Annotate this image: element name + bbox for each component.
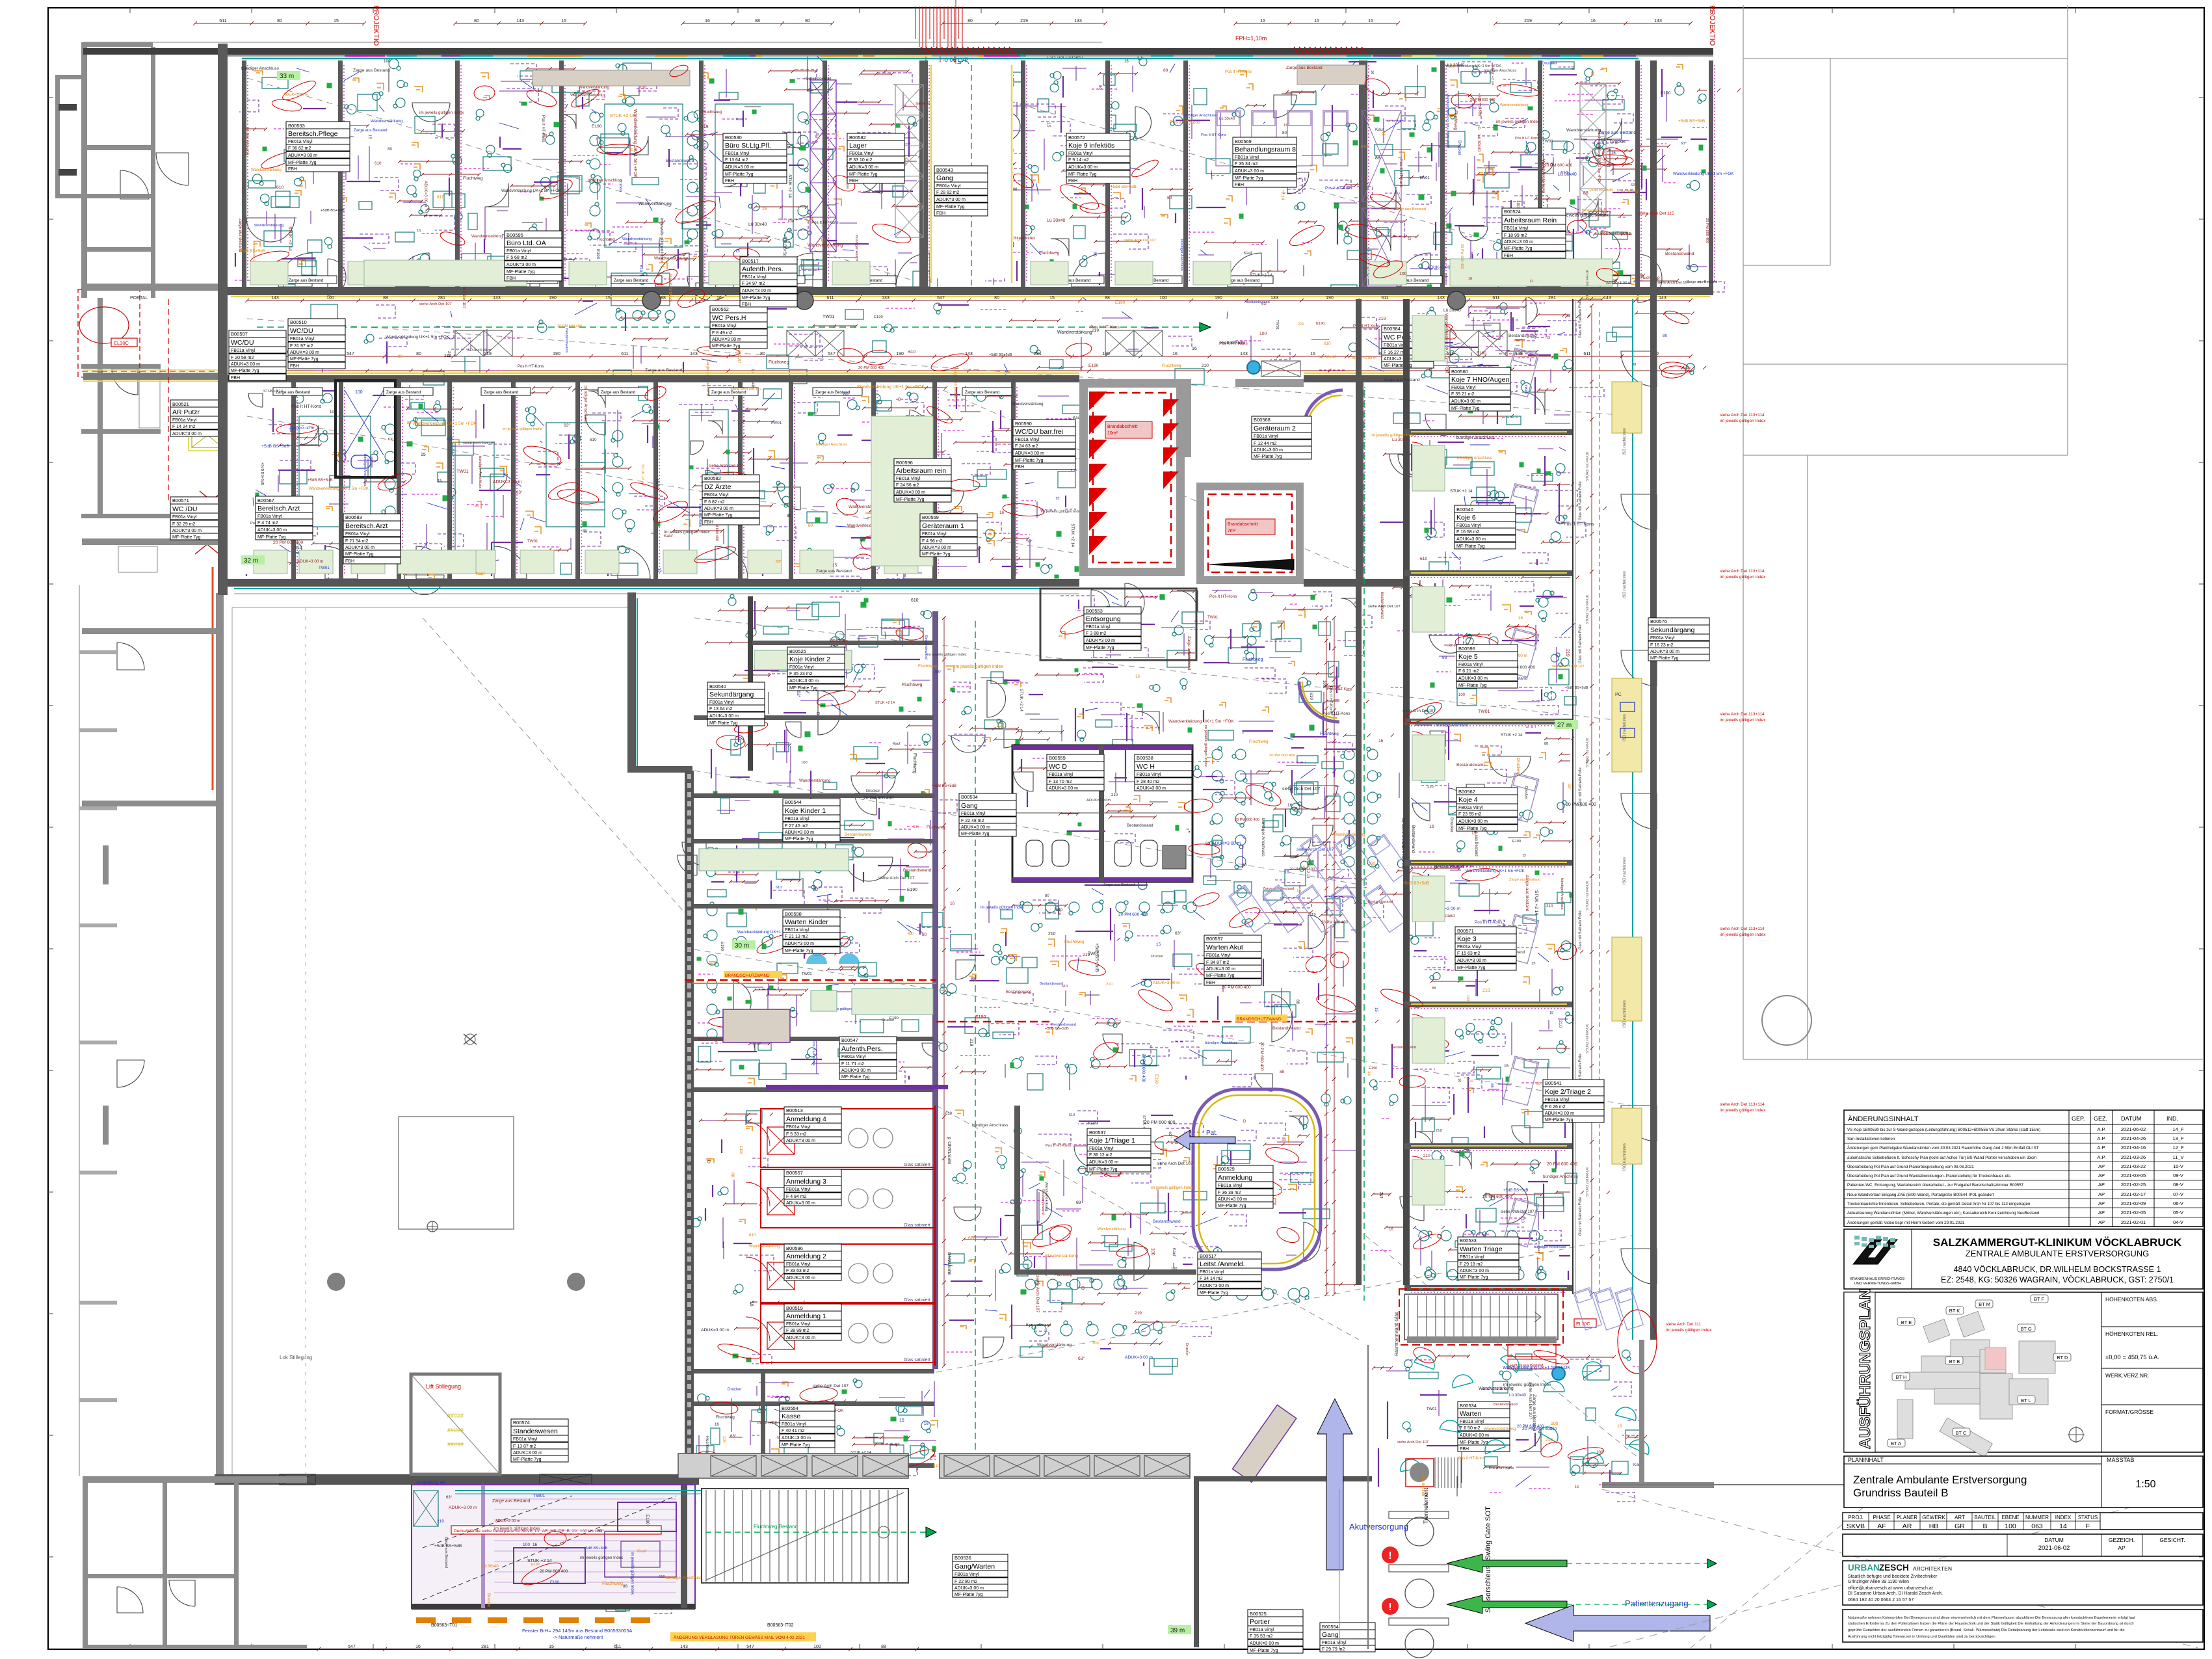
svg-text:20 PM 600 400: 20 PM 600 400 [1144,1121,1176,1125]
svg-text:MF-Platte 7yg: MF-Platte 7yg [1456,544,1485,549]
svg-text:B00562: B00562 [712,306,729,312]
svg-text:FB01a Vinyl: FB01a Vinyl [1458,663,1483,667]
svg-text:bündiger Anschluss: bündiger Anschluss [363,454,367,486]
svg-text:Wandverstärkung: Wandverstärkung [1500,103,1529,107]
svg-text:B00524: B00524 [1504,209,1521,215]
svg-text:Zarge aus Bestand: Zarge aus Bestand [1532,1394,1536,1431]
svg-text:100: 100 [1466,995,1469,1001]
svg-text:TW01: TW01 [1478,710,1490,714]
svg-text:F 28 40 m2: F 28 40 m2 [1137,780,1160,784]
svg-text:10-V: 10-V [2173,1163,2183,1169]
svg-text:Anmeldung 1: Anmeldung 1 [786,1312,826,1320]
svg-text:Zarge aus Bestand: Zarge aus Bestand [1263,887,1294,891]
svg-text:im jeweils gültigen Index: im jeweils gültigen Index [1720,718,1766,723]
svg-text:WC /DU: WC /DU [172,505,198,513]
svg-text:Lü 30x40: Lü 30x40 [1558,172,1577,177]
svg-text:B00529: B00529 [1218,1166,1235,1172]
svg-text:281: 281 [1548,296,1556,300]
svg-text:ISG nachrüsten: ISG nachrüsten [1623,428,1627,455]
svg-text:BT L: BT L [2021,1398,2031,1403]
svg-text:office@urbanzesch.at: office@urbanzesch.at www urbanzesch.at [1848,1586,1933,1591]
svg-text:ISG nachrüsten: ISG nachrüsten [1623,1000,1627,1028]
svg-text:AP: AP [2098,1210,2105,1215]
svg-text:15: 15 [334,19,339,23]
svg-text:ADUK=3 00 m: ADUK=3 00 m [742,289,771,293]
svg-text:ADUK=3 00 m: ADUK=3 00 m [922,546,951,550]
svg-text:B00571: B00571 [1457,928,1474,934]
svg-text:100: 100 [813,1645,821,1649]
svg-text:Pos It HT-Kons: Pos It HT-Kons [811,220,839,225]
svg-text:TW01: TW01 [770,421,782,425]
svg-text:210: 210 [1111,793,1118,797]
svg-text:PORTAL: PORTAL [130,296,148,300]
svg-text:A.P.: A.P. [2097,1126,2105,1132]
svg-text:STUK +2 14: STUK +2 14 [610,114,635,118]
svg-text:88: 88 [1105,296,1110,300]
svg-text:FB01a Vinyl: FB01a Vinyl [507,249,531,254]
svg-text:100: 100 [1596,1450,1603,1455]
svg-text:FB01a Vinyl: FB01a Vinyl [1137,773,1161,777]
svg-text:MF-Platte 7yg: MF-Platte 7yg [1200,1291,1228,1295]
svg-text:210: 210 [834,131,839,138]
svg-text:15: 15 [899,1418,904,1423]
svg-text:FBH: FBH [849,179,858,183]
svg-text:+5dB BS+5dB: +5dB BS+5dB [1111,185,1137,189]
svg-text:bündiger Anschluss: bündiger Anschluss [1560,878,1564,910]
svg-text:12_F: 12_F [2172,1145,2184,1150]
svg-text:im jeweils gültigen Index: im jeweils gültigen Index [1151,1186,1193,1190]
svg-text:FBH: FBH [290,364,299,369]
svg-text:15: 15 [1531,962,1536,966]
svg-text:siehe Arch Det 107: siehe Arch Det 107 [731,388,761,392]
svg-text:Wandverkleidung UK+1 5m +FOK: Wandverkleidung UK+1 5m +FOK [1673,172,1734,176]
svg-text:MF-Platte 7yg: MF-Platte 7yg [922,552,951,557]
svg-text:ADUK=3 00 m: ADUK=3 00 m [1460,1433,1489,1438]
svg-text:Wandverstärkung: Wandverstärkung [622,237,652,241]
svg-text:F 15 63 m2: F 15 63 m2 [1457,951,1481,956]
svg-text:F 38 99 m2: F 38 99 m2 [786,1329,810,1333]
svg-text:B00554: B00554 [1322,1624,1339,1630]
svg-text:20 PM 600 400: 20 PM 600 400 [1482,1195,1512,1199]
svg-text:Bestandswand: Bestandswand [903,868,932,873]
svg-text:MF-Platte 7yg: MF-Platte 7yg [290,357,319,362]
svg-text:WC H: WC H [1137,763,1155,771]
svg-text:BT A: BT A [1891,1440,1901,1446]
svg-text:MF-Platte 7yg: MF-Platte 7yg [172,535,201,540]
svg-text:15: 15 [657,569,662,573]
svg-text:Kauf: Kauf [736,118,744,122]
svg-text:Bereitsch.Pflege: Bereitsch.Pflege [288,130,338,138]
svg-text:Fluchtweg: Fluchtweg [1064,940,1084,944]
svg-text:2021-02-25: 2021-02-25 [2121,1182,2146,1188]
svg-text:STURZ mit FR-UK: STURZ mit FR-UK [1586,269,1590,299]
svg-text:ISG nachrüsten: ISG nachrüsten [1623,857,1627,884]
svg-text:FORMAT/GRÖSSE: FORMAT/GRÖSSE [2105,1409,2153,1415]
svg-text:88: 88 [1432,987,1436,990]
svg-text:bündiger Anschluss: bündiger Anschluss [588,178,622,183]
svg-text:siehe Arch Det 107: siehe Arch Det 107 [1157,1161,1193,1166]
svg-text:B00519: B00519 [786,1305,803,1311]
svg-text:FB01a Vinyl: FB01a Vinyl [231,349,256,353]
svg-text:F 5 68 m2: F 5 68 m2 [507,256,527,260]
svg-text:100: 100 [1516,200,1520,207]
svg-text:Zarge aus Bestand: Zarge aus Bestand [444,1537,448,1568]
svg-text:88: 88 [1375,156,1380,161]
svg-text:Gang/Warten: Gang/Warten [955,1563,995,1571]
svg-text:FBH: FBH [231,376,240,380]
svg-text:siehe Arch Det 113+114: siehe Arch Det 113+114 [1720,569,1765,574]
svg-text:88: 88 [881,1645,886,1649]
svg-text:F 33 10 m2: F 33 10 m2 [849,158,873,163]
svg-text:NUMMER: NUMMER [2025,1515,2049,1520]
svg-text:Lift Stillegung: Lift Stillegung [426,1383,461,1390]
svg-text:MF-Platte 7yg: MF-Platte 7yg [955,1593,983,1597]
svg-text:Wandverstärkung: Wandverstärkung [1057,330,1092,335]
svg-text:Kauf: Kauf [1244,252,1252,256]
svg-text:Wandverstärkung: Wandverstärkung [799,778,831,783]
svg-text:F 36 62 m2: F 36 62 m2 [288,146,311,151]
svg-text:ISG nachrüsten: ISG nachrüsten [1623,714,1627,741]
svg-text:B00582: B00582 [849,135,866,140]
svg-text:20 PM 600 400: 20 PM 600 400 [1321,921,1348,925]
svg-text:Lü 30x40: Lü 30x40 [1319,355,1336,360]
svg-text:im jeweils gültigen Index: im jeweils gültigen Index [503,427,542,431]
svg-text:SKVB: SKVB [1847,1522,1865,1530]
svg-text:63°: 63° [564,423,570,428]
svg-text:Gang: Gang [1322,1631,1339,1639]
svg-text:Bestandswand: Bestandswand [1665,252,1694,256]
svg-text:B00534: B00534 [961,794,978,800]
svg-text:ADUK=3 00 m: ADUK=3 00 m [257,528,287,533]
svg-text:F 29 79 m2: F 29 79 m2 [1322,1647,1345,1652]
svg-text:Kauf: Kauf [1088,1121,1096,1126]
svg-text:Neue Wandverlauf Eingang ZAE (: Neue Wandverlauf Eingang ZAE (EI90-Wand)… [1847,1193,1994,1197]
svg-text:FB01a Vinyl: FB01a Vinyl [1456,524,1481,528]
svg-text:E190: E190 [531,1563,540,1567]
svg-text:+5dB BS+5dB: +5dB BS+5dB [1589,189,1613,192]
svg-text:80: 80 [843,392,849,397]
svg-text:+5dB BS+5dB: +5dB BS+5dB [1220,341,1245,345]
svg-text:E190: E190 [1477,351,1486,356]
svg-text:B00568: B00568 [1254,417,1271,423]
svg-text:ADUK=3 00 m: ADUK=3 00 m [493,480,521,484]
svg-text:15: 15 [1049,296,1055,300]
svg-text:32 m: 32 m [244,557,258,564]
svg-text:F 8 49 m2: F 8 49 m2 [712,331,733,336]
svg-text:+5dB BS+5dB: +5dB BS+5dB [698,503,702,527]
svg-text:Kauf: Kauf [664,534,673,538]
svg-text:Zarge aus Bestand: Zarge aus Bestand [601,390,636,395]
svg-text:MF-Platte 7yg: MF-Platte 7yg [742,296,770,300]
svg-text:80: 80 [808,524,813,528]
svg-text:im jeweils gültigen Index: im jeweils gültigen Index [1371,433,1417,438]
svg-text:20 PM 600 400: 20 PM 600 400 [540,1569,568,1574]
svg-text:Wandverstärkung: Wandverstärkung [251,168,282,172]
svg-text:Wandverkleidung UK+1 5m +FOK: Wandverkleidung UK+1 5m +FOK [413,421,477,426]
svg-text:Warten: Warten [1460,1410,1482,1418]
svg-text:15: 15 [832,563,837,568]
svg-text:Zarge aus Bestand: Zarge aus Bestand [1687,280,1717,284]
svg-text:610: 610 [1309,693,1313,700]
svg-text:FB01a Vinyl: FB01a Vinyl [961,812,986,816]
svg-text:FB01a Vinyl: FB01a Vinyl [786,1188,811,1192]
svg-text:F 24 63 m2: F 24 63 m2 [1015,444,1038,449]
svg-text:Wandverstärkung: Wandverstärkung [570,93,604,98]
svg-text:Bestandswand: Bestandswand [1026,1323,1051,1327]
svg-text:610: 610 [1069,1113,1075,1117]
svg-text:143: 143 [1659,296,1666,300]
svg-text:F 6 50 m2: F 6 50 m2 [1460,1426,1481,1431]
svg-text:Kauf: Kauf [637,1549,646,1554]
svg-text:80: 80 [922,933,927,937]
svg-text:80: 80 [968,19,973,23]
svg-text:15: 15 [1314,19,1319,23]
svg-text:siehe Arch Det 113+114: siehe Arch Det 113+114 [1720,1102,1765,1107]
svg-text:E190: E190 [975,1015,986,1020]
svg-text:BAUTEIL: BAUTEIL [1974,1515,1996,1520]
svg-text:100: 100 [1150,1248,1155,1256]
svg-text:Pat.: Pat. [1206,1130,1218,1137]
svg-text:30 m: 30 m [735,942,749,949]
svg-text:281: 281 [438,296,445,300]
svg-text:BESTAND: BESTAND [947,1252,953,1275]
svg-text:16: 16 [1192,347,1197,351]
svg-text:B00560: B00560 [1451,369,1468,375]
svg-text:16: 16 [1370,70,1374,74]
svg-text:Sensorschleuse Swing Gate SOT: Sensorschleuse Swing Gate SOT [1484,1506,1492,1613]
svg-text:F 34 87 m2: F 34 87 m2 [1206,961,1230,965]
svg-text:1:50: 1:50 [2135,1479,2155,1490]
svg-text:219: 219 [1436,1129,1442,1133]
svg-text:Warten Triage: Warten Triage [1460,1245,1503,1253]
svg-text:bündiger Anschluss: bündiger Anschluss [1484,69,1516,73]
svg-text:bündiger Anschluss: bündiger Anschluss [1534,1245,1566,1249]
svg-text:133: 133 [1515,352,1523,356]
svg-text:F 6 82 m2: F 6 82 m2 [704,500,725,505]
svg-text:88: 88 [1490,1083,1494,1088]
svg-text:Wandverstärkung: Wandverstärkung [1098,1227,1126,1231]
svg-text:27 m: 27 m [1557,722,1572,729]
svg-text:63°: 63° [1078,1356,1085,1361]
svg-text:BT M: BT M [1979,1301,1990,1307]
svg-text:Fluchtweg: Fluchtweg [1039,251,1060,256]
svg-text:BESTAND: BESTAND [947,1141,953,1164]
svg-text:63°: 63° [1567,784,1572,790]
svg-text:Zarge aus Bestand: Zarge aus Bestand [1509,878,1540,882]
svg-text:MF-Platte 7yg: MF-Platte 7yg [513,1457,542,1462]
svg-text:F 23 55 m2: F 23 55 m2 [1458,812,1482,817]
svg-text:100: 100 [388,438,393,442]
svg-text:STATUS: STATUS [2078,1515,2098,1520]
svg-text:bündiger Anschluss: bündiger Anschluss [1543,1175,1578,1179]
svg-text:B00554: B00554 [782,1405,798,1411]
svg-text:-> Naturmaße nehmen!: -> Naturmaße nehmen! [553,1634,603,1640]
svg-text:Fluchtweg: Fluchtweg [1249,739,1269,744]
svg-text:B00536: B00536 [955,1555,971,1561]
svg-text:geprüfte Gutachten der ausführ: geprüfte Gutachten der ausführenden Firm… [1848,1628,2125,1632]
svg-text:FB01a Vinyl: FB01a Vinyl [1504,226,1529,231]
svg-text:Glas mit Salinelo Folie: Glas mit Salinelo Folie [1579,767,1583,806]
svg-text:Bestandswand: Bestandswand [1411,825,1415,853]
svg-text:ADUK=3 00 m: ADUK=3 00 m [1456,537,1486,542]
svg-text:Lü 30x40: Lü 30x40 [1392,438,1410,442]
svg-text:16: 16 [1381,131,1386,136]
svg-text:F 24 56 m2: F 24 56 m2 [896,483,919,488]
svg-text:B00541: B00541 [1545,1080,1562,1086]
svg-text:15: 15 [1310,352,1315,356]
svg-text:610: 610 [776,886,782,890]
svg-text:Arbeitsraum Rein: Arbeitsraum Rein [1504,217,1557,224]
svg-text:ZESCH: ZESCH [1879,1563,1909,1573]
svg-text:BRANDSCHUTZWAND: BRANDSCHUTZWAND [725,974,770,978]
svg-text:Drucker: Drucker [866,789,880,793]
svg-text:AP: AP [2098,1163,2105,1169]
svg-text:bündiger Anschluss: bündiger Anschluss [666,1576,702,1580]
svg-text:143: 143 [1437,296,1445,300]
svg-text:E190: E190 [596,249,600,259]
svg-text:Lü 30x40: Lü 30x40 [482,1565,499,1569]
svg-text:WC/DU: WC/DU [290,327,313,335]
svg-text:STUK +2 14: STUK +2 14 [287,226,292,251]
svg-text:F 34 97 m2: F 34 97 m2 [742,282,765,286]
svg-text:80: 80 [1282,131,1287,135]
svg-text:FB01a Vinyl: FB01a Vinyl [936,184,961,189]
svg-text:4840 VÖCKLABRUCK, DR.WILHELM B: 4840 VÖCKLABRUCK, DR.WILHELM BOCKSTRASSE… [1954,1265,2161,1274]
svg-text:FB01a Vinyl: FB01a Vinyl [1460,1255,1484,1260]
svg-text:80: 80 [760,352,765,356]
svg-text:FBH: FBH [725,179,734,183]
svg-text:14_F: 14_F [2172,1126,2184,1132]
svg-text:AP: AP [2098,1219,2105,1225]
svg-text:ZENTRALE AMBULANTE ERSTVERSORG: ZENTRALE AMBULANTE ERSTVERSORGUNG [1966,1249,2149,1258]
svg-text:ADUK=3 00 m: ADUK=3 00 m [725,165,754,170]
svg-text:15: 15 [1504,1064,1509,1068]
svg-text:MF-Platte 7yg: MF-Platte 7yg [1089,1167,1118,1172]
svg-text:610: 610 [639,265,642,272]
svg-text:610: 610 [933,1464,940,1468]
svg-text:F 21 54 m2: F 21 54 m2 [345,539,369,544]
svg-text:ADUK=3 00 m: ADUK=3 00 m [1650,650,1679,654]
svg-text:15: 15 [1549,1011,1553,1015]
svg-text:11_V: 11_V [2173,1154,2184,1160]
svg-text:ADUK=3 00 m: ADUK=3 00 m [1153,981,1180,985]
svg-text:F 36 12 m2: F 36 12 m2 [1089,1153,1113,1158]
svg-text:16: 16 [1135,674,1140,679]
svg-text:ADUK=3 00 m: ADUK=3 00 m [1504,240,1533,245]
svg-text:siehe Arch Det 107: siehe Arch Det 107 [1282,787,1320,791]
svg-text:E190: E190 [720,942,724,951]
svg-text:GESICHT.: GESICHT. [2159,1537,2185,1543]
svg-text:Wandverkleidung UK+1 5m +FOK: Wandverkleidung UK+1 5m +FOK [309,486,369,491]
svg-text:Drucker: Drucker [1516,758,1520,774]
svg-text:AP: AP [2098,1182,2105,1188]
svg-text:Bestandswand: Bestandswand [1051,1023,1076,1027]
svg-text:Fluchtweg Bestand: Fluchtweg Bestand [754,1524,798,1530]
svg-text:FBH: FBH [1460,1447,1469,1452]
svg-text:219: 219 [1379,1192,1383,1199]
svg-text:FPH=1,10m: FPH=1,10m [1235,35,1267,42]
svg-text:Fluchtweg: Fluchtweg [1055,1273,1072,1277]
svg-text:210: 210 [818,238,825,243]
svg-text:Wandverkleidung UK+1 5m +FOK: Wandverkleidung UK+1 5m +FOK [1445,94,1449,149]
svg-text:219: 219 [1524,19,1532,23]
svg-text:Glas satiniert: Glas satiniert [904,1358,930,1362]
svg-text:im jeweils gültigen Index: im jeweils gültigen Index [419,111,464,115]
svg-text:URBAN: URBAN [1848,1563,1880,1573]
svg-text:ADUK=3 00 m: ADUK=3 00 m [789,679,819,684]
svg-text:20 PM 600 400: 20 PM 600 400 [1460,244,1464,269]
svg-text:610: 610 [295,546,302,550]
svg-text:bündiger Anschluss: bündiger Anschluss [1179,239,1183,271]
svg-text:610: 610 [276,185,284,190]
svg-text:100: 100 [384,59,391,64]
svg-text:FB01a Vinyl: FB01a Vinyl [1235,155,1259,160]
svg-text:B00557: B00557 [786,1170,803,1176]
svg-text:2021-03-05: 2021-03-05 [2121,1173,2146,1178]
svg-text:B00510: B00510 [290,319,307,325]
svg-text:Lü 30x40: Lü 30x40 [1219,117,1235,121]
svg-text:im jeweils gültigen Index: im jeweils gültigen Index [955,665,1003,669]
svg-text:B00557: B00557 [1206,936,1223,942]
svg-text:Koje 6: Koje 6 [1456,514,1476,522]
svg-text:Ausführung nicht lelztgülig T: Ausführung nicht lelztgülig Toleranzen i… [1848,1635,1995,1639]
svg-text:ADUK=3 00 m: ADUK=3 00 m [955,1586,984,1591]
svg-text:F 13 64 m2: F 13 64 m2 [709,707,733,711]
svg-text:Pos It HT-Kons: Pos It HT-Kons [811,1040,815,1066]
svg-text:15: 15 [1260,19,1265,23]
svg-text:±0,00 = 450,75 ü.A.: ±0,00 = 450,75 ü.A. [2105,1354,2159,1361]
svg-text:20 PM 600 400: 20 PM 600 400 [244,127,249,155]
svg-text:80: 80 [1663,334,1668,338]
svg-text:B00540: B00540 [709,684,726,689]
svg-text:Trockenbaulichte Innenturen, S: Trockenbaulichte Innenturen, Schiebeture… [1847,1202,2031,1206]
svg-text:MF-Platte 7yg: MF-Platte 7yg [785,949,813,953]
svg-text:63°: 63° [843,640,848,644]
svg-text:2021-04-16: 2021-04-16 [2121,1145,2146,1150]
svg-text:ADUK=3 00 m: ADUK=3 00 m [283,93,308,97]
svg-text:Aufenth.Pers.: Aufenth.Pers. [841,1045,883,1053]
svg-text:2021-02-17: 2021-02-17 [2121,1191,2146,1197]
svg-text:D: D [1313,737,1317,739]
svg-text:Drucker: Drucker [486,1593,491,1607]
svg-text:FB01a Vinyl: FB01a Vinyl [742,275,767,280]
svg-text:STUK +2 14: STUK +2 14 [1070,524,1075,547]
svg-text:F 16 58 m2: F 16 58 m2 [1456,530,1480,535]
svg-text:FBH: FBH [936,211,945,216]
svg-text:Geräteraum 2: Geräteraum 2 [1254,425,1296,432]
svg-text:610: 610 [945,1112,953,1116]
svg-text:2021-02-05: 2021-02-05 [2121,1210,2146,1215]
svg-text:siehe Arch Det 107: siehe Arch Det 107 [709,464,744,468]
svg-text:ADUK=3 00 m: ADUK=3 00 m [449,1506,477,1510]
svg-text:20 PM 600 400: 20 PM 600 400 [1222,985,1251,990]
svg-text:MF-Platte 7yg: MF-Platte 7yg [896,498,925,502]
svg-text:Wandverkleidung UK+1 5m +FOK: Wandverkleidung UK+1 5m +FOK [857,385,925,390]
svg-text:ADUK=3 00 m: ADUK=3 00 m [1089,1160,1118,1165]
svg-text:88: 88 [407,421,412,425]
svg-text:AF: AF [1877,1522,1886,1530]
svg-text:FB01a Vinyl: FB01a Vinyl [513,1437,538,1442]
svg-text:FB01a Vinyl: FB01a Vinyl [290,337,315,341]
svg-text:Wandverstärkung: Wandverstärkung [1012,402,1044,406]
svg-text:20 PM 600 400: 20 PM 600 400 [1517,1424,1544,1429]
svg-text:100: 100 [1368,862,1375,866]
svg-text:STURZ mit FR-UK: STURZ mit FR-UK [1586,451,1590,481]
svg-text:Zarge aus Bestand: Zarge aus Bestand [1103,883,1135,887]
svg-text:B00537: B00537 [1089,1130,1106,1135]
svg-text:FB01a Vinyl: FB01a Vinyl [1458,806,1483,810]
svg-text:BT G: BT G [2020,1326,2032,1332]
